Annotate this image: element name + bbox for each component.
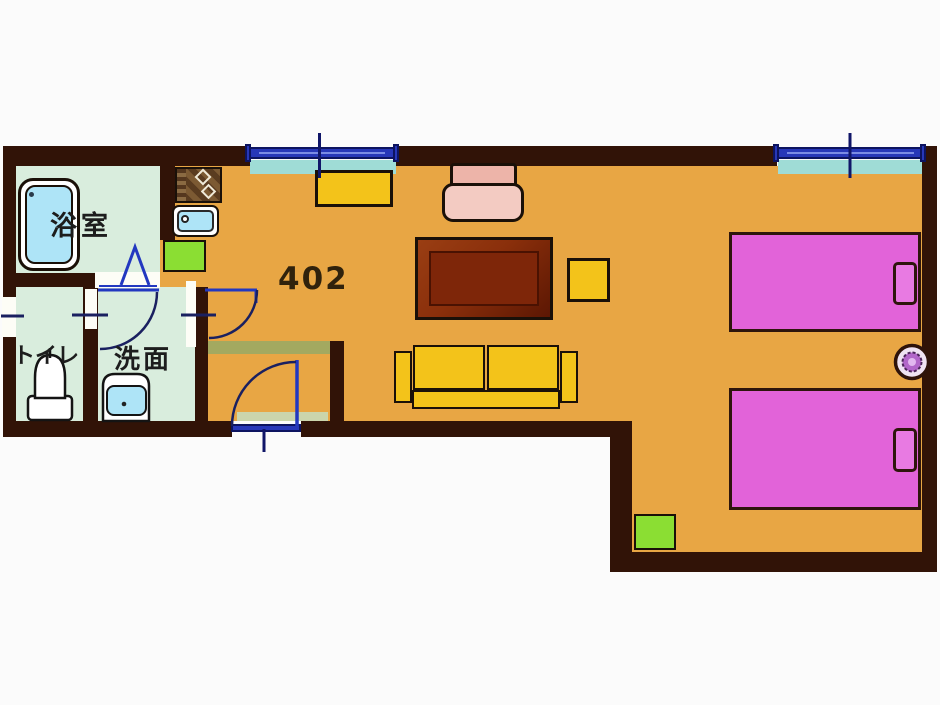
washroom-label: 洗面 — [114, 339, 172, 376]
folding-door-icon — [121, 247, 149, 285]
toilet-label: トイレ — [13, 338, 79, 370]
floor-plan: 浴室 トイレ 洗面 402 — [0, 0, 940, 705]
room-number: 402 — [278, 261, 349, 297]
hallway-door-arc — [209, 290, 257, 338]
wash-basin-drain-icon — [122, 402, 127, 407]
wash-basin-bowl — [107, 386, 146, 415]
bathroom-label: 浴室 — [50, 204, 112, 243]
entrance-door-arc — [232, 362, 296, 426]
toilet-base-icon — [28, 396, 72, 420]
stool-center — [908, 358, 916, 366]
